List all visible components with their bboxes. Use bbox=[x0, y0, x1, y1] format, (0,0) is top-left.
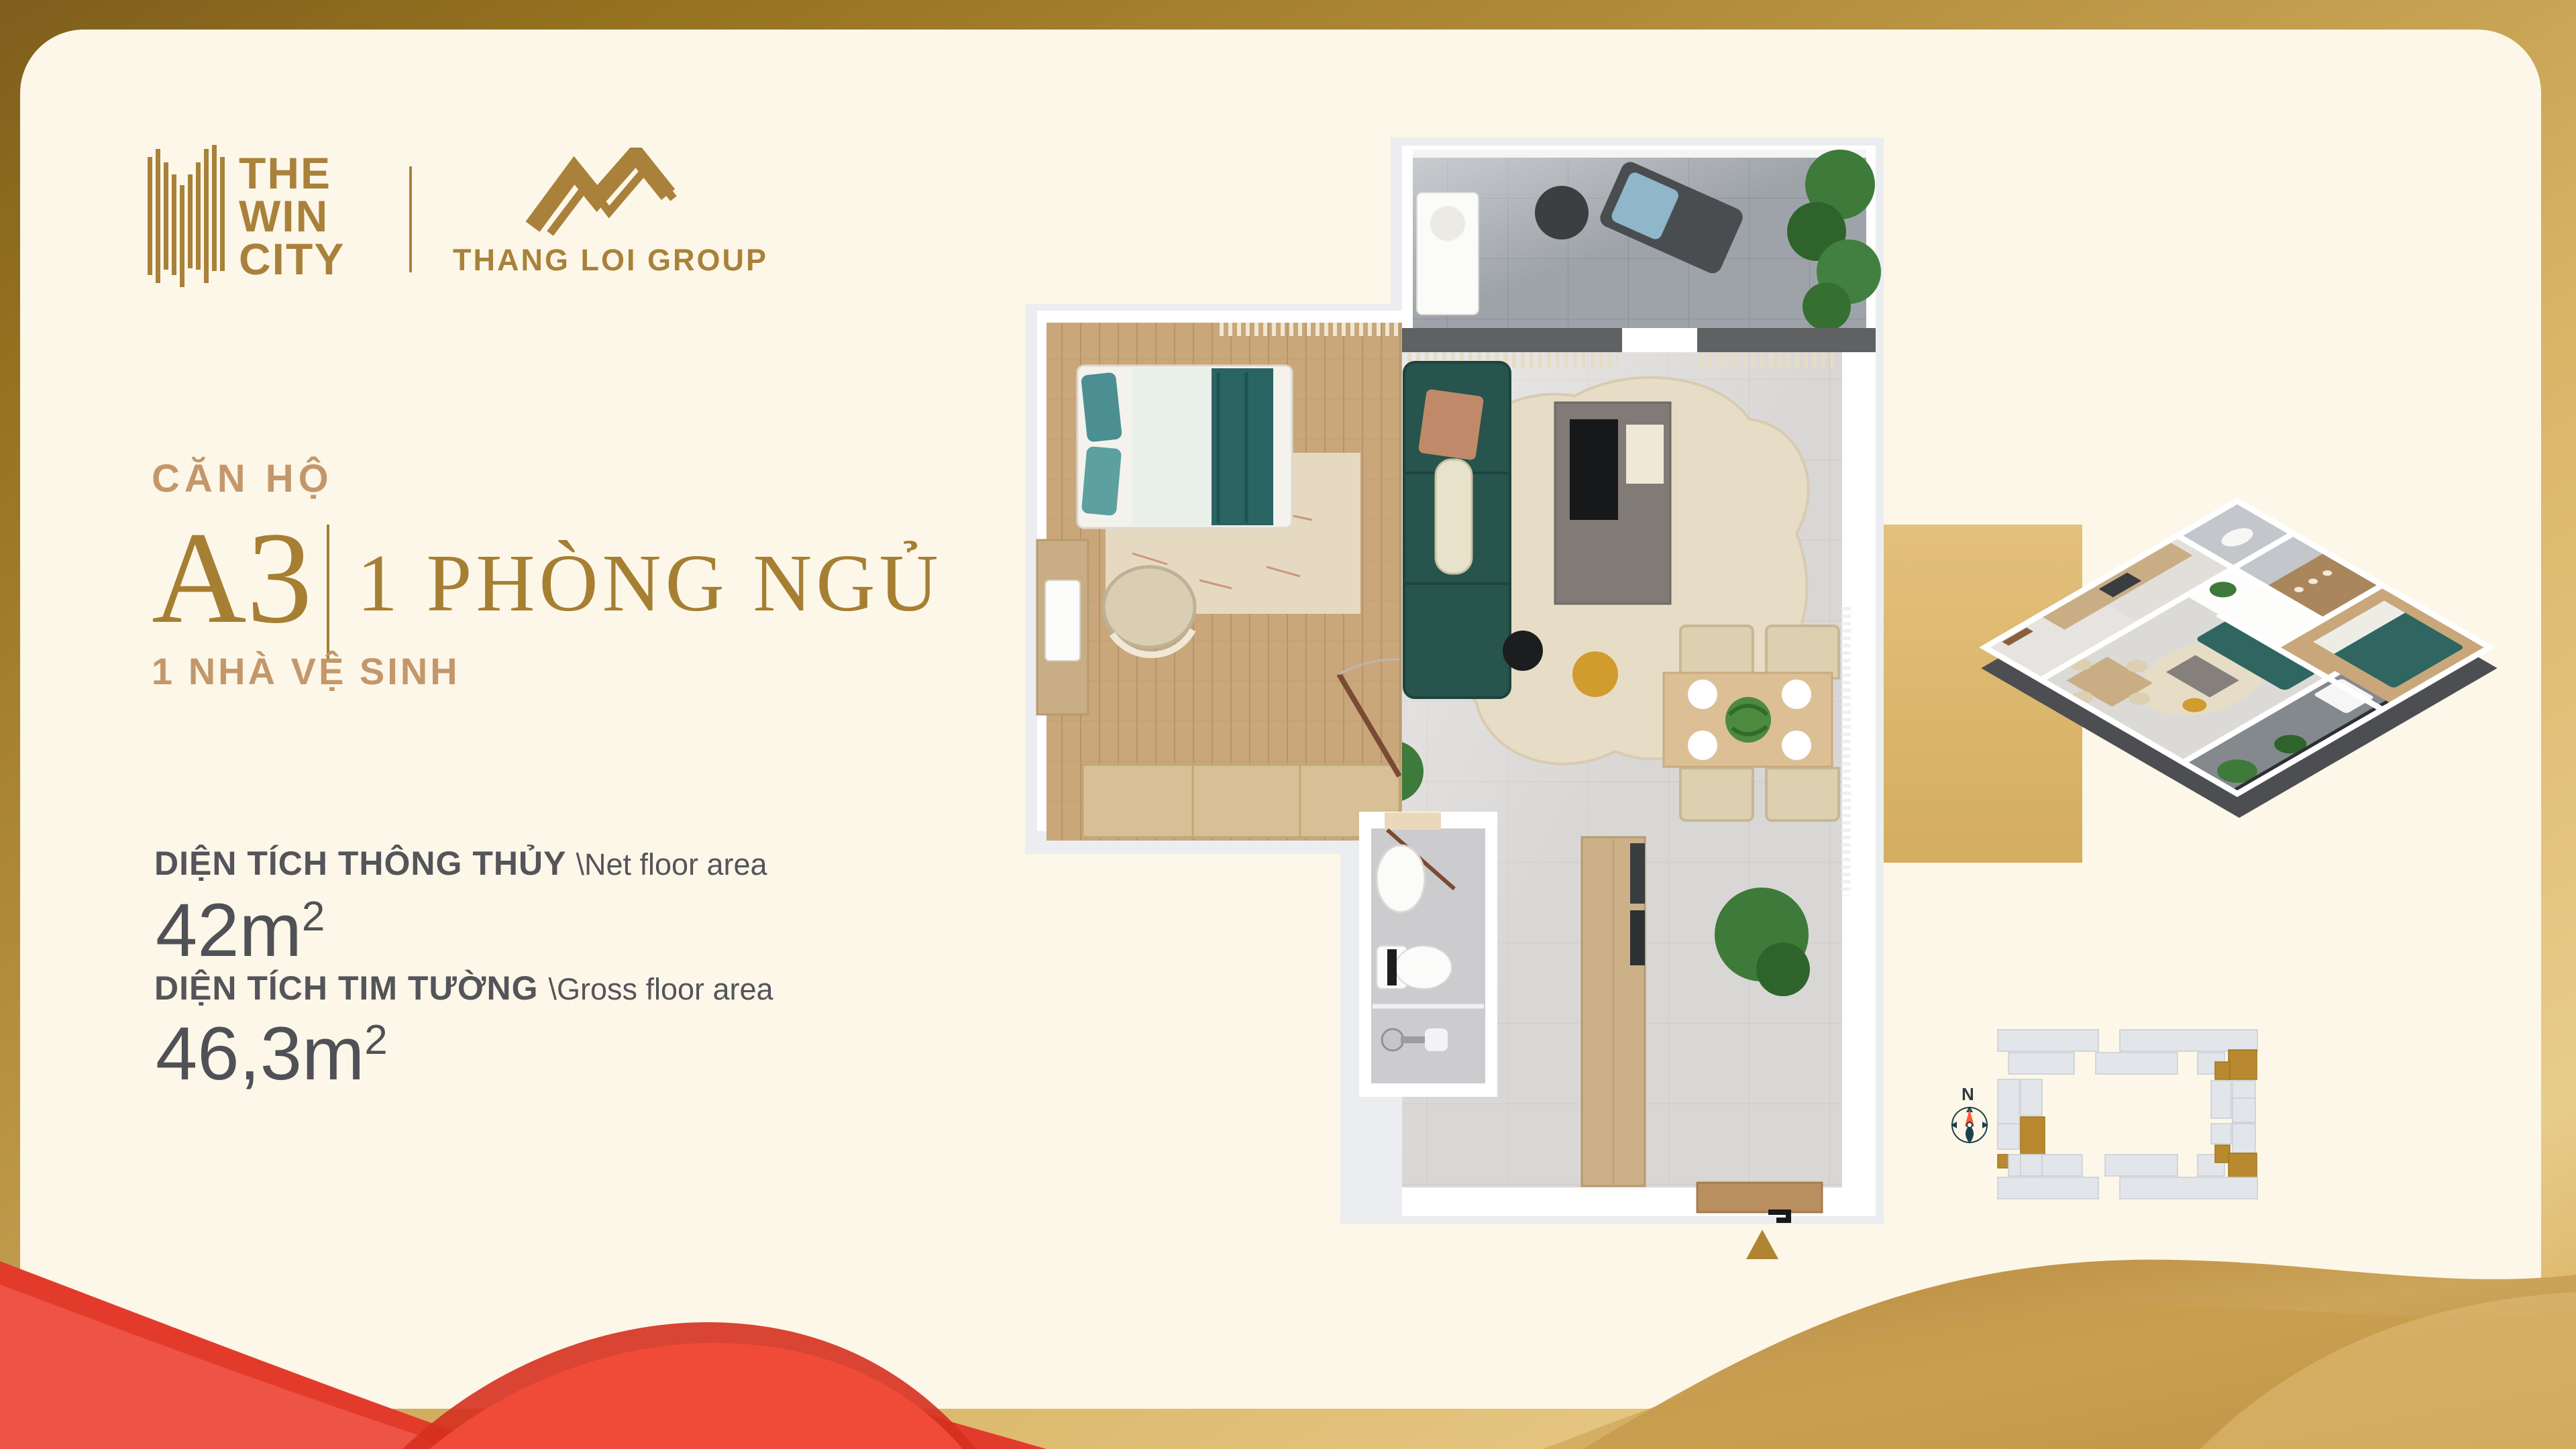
site-plan-unit bbox=[2211, 1081, 2231, 1118]
unit-3d-view bbox=[1972, 376, 2502, 906]
coffee-table-icon bbox=[1555, 402, 1670, 604]
logo-line-city: CITY bbox=[239, 237, 413, 280]
site-plan-unit bbox=[1998, 1177, 2098, 1199]
site-plan-unit bbox=[2021, 1155, 2042, 1176]
site-plan-unit bbox=[2233, 1124, 2255, 1153]
win-city-logo-icon bbox=[148, 145, 225, 287]
gross-area-label: DIỆN TÍCH TIM TƯỜNG \Gross floor area bbox=[154, 969, 773, 1008]
site-plan-unit bbox=[2008, 1053, 2074, 1074]
iso-floorplate bbox=[1979, 498, 2495, 797]
sofa-icon bbox=[1404, 362, 1510, 698]
sofa-pillow-roll bbox=[1436, 460, 1472, 574]
balcony-side-table-icon bbox=[1535, 186, 1589, 239]
developer-name: THANG LOI GROUP bbox=[443, 243, 778, 278]
dining-chair bbox=[1766, 768, 1839, 820]
gold-stool-icon bbox=[1572, 651, 1618, 697]
site-plan-unit-highlighted bbox=[2215, 1145, 2230, 1163]
compass-north-label: N bbox=[1962, 1084, 1974, 1104]
balcony bbox=[1413, 150, 1881, 331]
site-plan-unit bbox=[1998, 1030, 2098, 1051]
brochure-page: THE WIN CITY THANG LOI GROUP CĂN HỘ A3 1… bbox=[0, 0, 2576, 1449]
gross-area-value: 46,3m2 bbox=[156, 1010, 388, 1097]
site-plan: N bbox=[1944, 1023, 2279, 1224]
sofa-pillow-peach bbox=[1418, 388, 1485, 460]
dining-set bbox=[1664, 626, 1839, 820]
site-plan-unit bbox=[2120, 1030, 2257, 1051]
site-plan-unit bbox=[2021, 1079, 2042, 1116]
gross-area-label-en: \Gross floor area bbox=[548, 972, 773, 1006]
door-mat bbox=[1697, 1183, 1822, 1212]
logo-divider bbox=[409, 166, 412, 272]
floor-plan-2d bbox=[1025, 138, 1884, 1278]
site-plan-unit bbox=[2096, 1053, 2178, 1074]
site-plan-unit-highlighted bbox=[2229, 1050, 2257, 1079]
site-plan-unit bbox=[2105, 1155, 2178, 1176]
site-plan-blocks bbox=[1998, 1030, 2257, 1199]
net-area-label: DIỆN TÍCH THÔNG THỦY \Net floor area bbox=[154, 844, 767, 883]
dining-chair bbox=[1766, 626, 1839, 678]
pillow-icon bbox=[1081, 446, 1122, 516]
bathroom bbox=[1359, 812, 1497, 1097]
site-plan-unit bbox=[2008, 1155, 2082, 1176]
washing-machine-icon bbox=[1417, 193, 1479, 315]
unit-bathroom-count: 1 NHÀ VỆ SINH bbox=[152, 649, 460, 693]
balcony-door-opening bbox=[1622, 328, 1697, 352]
unit-type-label: CĂN HỘ bbox=[152, 456, 333, 501]
unit-title-divider bbox=[327, 525, 329, 661]
site-plan-unit bbox=[2120, 1177, 2257, 1199]
net-area-label-en: \Net floor area bbox=[576, 847, 767, 881]
cooktop-icon bbox=[1630, 843, 1645, 904]
oven-icon bbox=[1630, 910, 1645, 965]
hall-plant-icon bbox=[1756, 943, 1810, 996]
project-logo-text: THE WIN CITY bbox=[239, 152, 413, 280]
site-plan-unit-highlighted bbox=[2215, 1062, 2230, 1079]
bathroom-door-threshold bbox=[1385, 812, 1441, 830]
red-ribbon-wave bbox=[0, 1221, 1046, 1449]
site-plan-unit-highlighted bbox=[2021, 1117, 2045, 1159]
floor-lamp-icon bbox=[1503, 631, 1543, 671]
gold-dune-wave bbox=[1543, 1228, 2576, 1449]
site-plan-unit bbox=[1998, 1124, 2019, 1149]
pillow-icon bbox=[1081, 372, 1122, 443]
unit-bedroom-count: 1 PHÒNG NGỦ bbox=[357, 537, 943, 631]
logo-line-win: WIN bbox=[239, 195, 413, 237]
kitchen-counter bbox=[1582, 837, 1645, 1186]
bedroom bbox=[1037, 323, 1402, 841]
dining-chair bbox=[1680, 626, 1753, 678]
unit-code: A3 bbox=[152, 511, 313, 645]
sink-icon bbox=[1377, 845, 1425, 912]
thang-loi-logo-icon bbox=[523, 148, 678, 241]
compass-icon: N bbox=[1951, 1084, 1988, 1144]
dining-chair bbox=[1680, 768, 1753, 820]
bed-icon bbox=[1077, 366, 1292, 528]
laptop-icon bbox=[1045, 580, 1080, 661]
site-plan-unit bbox=[2233, 1098, 2255, 1122]
logo-line-the: THE bbox=[239, 152, 413, 195]
toilet-icon bbox=[1377, 946, 1452, 989]
site-plan-unit bbox=[2211, 1124, 2231, 1144]
net-area-value: 42m2 bbox=[156, 887, 325, 973]
wardrobe-icon bbox=[1083, 765, 1399, 837]
